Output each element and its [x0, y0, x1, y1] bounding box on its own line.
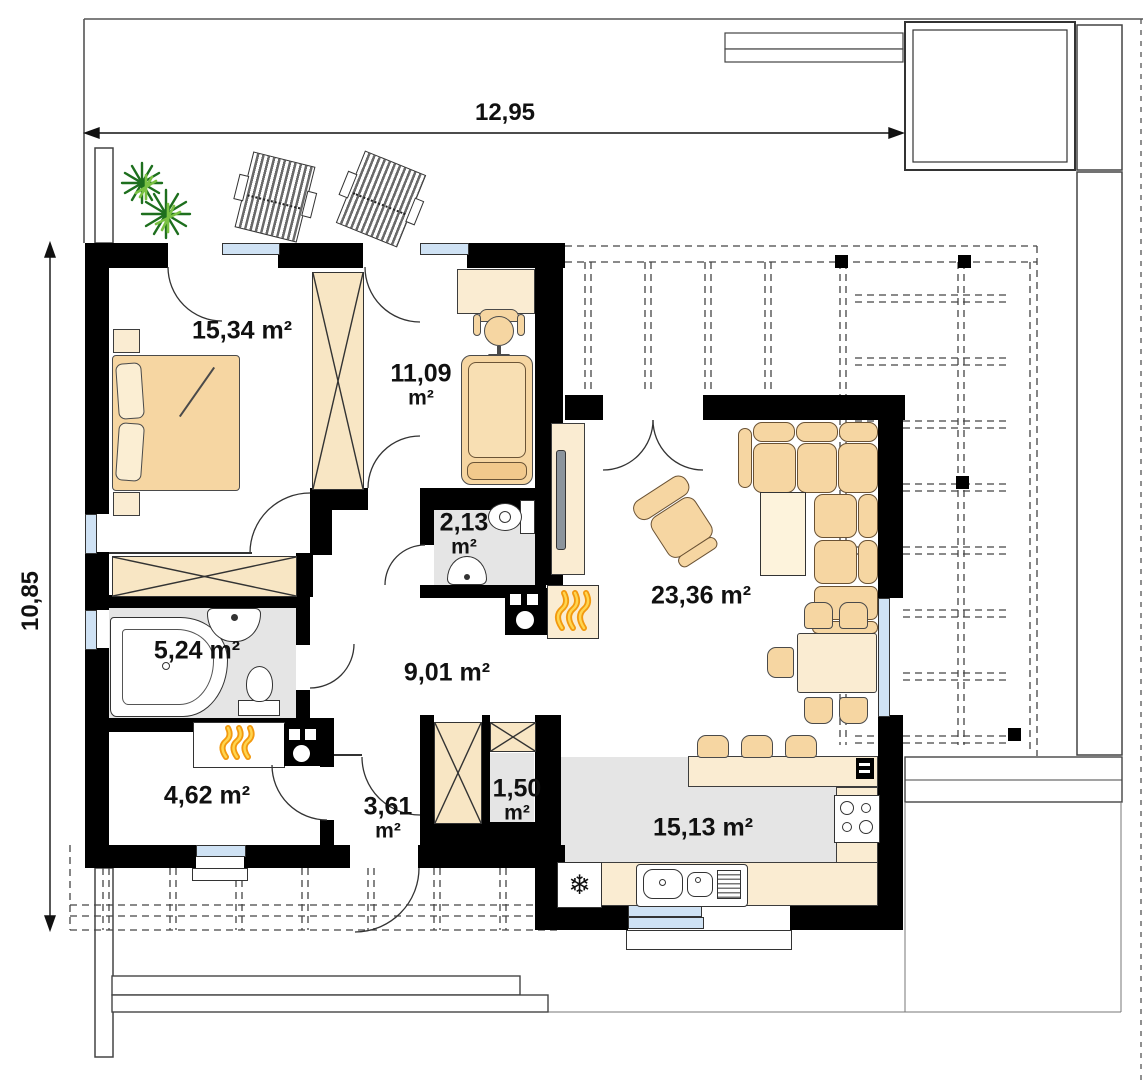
- entrance-door-gap: [350, 845, 418, 868]
- sofa-back-cushion: [796, 422, 838, 442]
- room-label-boiler: 4,62 m²: [164, 782, 250, 811]
- chimney-vent: [510, 594, 521, 605]
- window-pane: [196, 845, 246, 857]
- floor-plan: ❄ 15,34 m² 11,09 m² 2,13 m² 5,24 m² 4,62…: [0, 0, 1147, 1080]
- office-chair-seat: [484, 316, 514, 346]
- nightstand: [113, 329, 140, 353]
- room-label-pantry: 1,50 m²: [493, 777, 542, 824]
- daybed-pillow: [467, 462, 527, 480]
- dining-chair: [839, 602, 868, 629]
- panel-slot: [859, 763, 870, 766]
- pillow: [115, 422, 145, 482]
- office-terrace-door-gap: [363, 243, 420, 268]
- wardrobe: [434, 722, 482, 824]
- sofa-back-cushion: [839, 422, 878, 442]
- lounge-fold-line: [247, 194, 300, 209]
- room-label-kitchen: 15,13 m²: [653, 814, 753, 843]
- lounge-armrest: [301, 191, 317, 219]
- furnace-flame-icon: [194, 723, 280, 763]
- lounge-fold-line: [353, 192, 406, 215]
- wardrobe: [312, 272, 364, 490]
- living-double-door-gap: [603, 395, 703, 420]
- thin-wall-line: [109, 552, 252, 554]
- chimney-flue: [293, 745, 310, 762]
- armchair: [626, 462, 742, 578]
- sofa-seat: [797, 443, 837, 493]
- boiler-window: [196, 845, 244, 868]
- wall: [296, 553, 313, 597]
- window-pane: [222, 243, 280, 255]
- boiler-window-sill: [192, 868, 248, 881]
- bedroom-window: [222, 243, 278, 268]
- room-label-pantry-value: 1,50: [493, 777, 542, 803]
- sink-drain: [659, 879, 666, 886]
- dining-window: [878, 598, 903, 715]
- wall: [320, 732, 334, 767]
- kitchen-window-sill: [626, 930, 792, 950]
- fridge-icon: ❄: [557, 862, 602, 908]
- wall: [482, 715, 490, 825]
- chimney-block: [284, 724, 322, 766]
- dining-chair: [804, 602, 833, 629]
- room-label-pantry-unit: m²: [504, 802, 530, 823]
- sink-faucet: [695, 877, 701, 883]
- toilet-tank: [238, 700, 280, 716]
- window-pane: [420, 243, 469, 255]
- burner: [840, 801, 854, 815]
- room-label-entry: 3,61 m²: [364, 795, 413, 842]
- bar-counter: [688, 756, 878, 787]
- lounge-chair-icon: [336, 150, 426, 247]
- wardrobe: [490, 722, 536, 752]
- kitchen-window: [628, 905, 790, 930]
- wardrobe: [112, 556, 297, 597]
- room-label-bedroom: 15,34 m²: [192, 317, 292, 346]
- dining-chair: [839, 697, 868, 724]
- lounge-armrest: [233, 174, 249, 202]
- wall: [85, 243, 109, 868]
- window-pane: [878, 598, 890, 717]
- plant-icon: [112, 158, 196, 242]
- office-chair-armrest: [517, 314, 525, 336]
- sofa-seat: [814, 540, 857, 584]
- chimney-block: [505, 588, 547, 635]
- sink-drainer: [717, 870, 741, 899]
- room-label-office-unit: m²: [408, 387, 434, 408]
- sofa-back-cushion: [858, 540, 878, 584]
- bedroom-terrace-door-gap: [168, 243, 222, 268]
- basin-drain: [464, 574, 470, 580]
- room-label-hall: 9,01 m²: [404, 659, 490, 688]
- room-label-entry-unit: m²: [375, 820, 401, 841]
- lounge-armrest: [405, 198, 424, 226]
- bar-stool: [785, 735, 817, 758]
- wall: [420, 510, 434, 545]
- fireplace: [547, 585, 599, 639]
- wall: [296, 690, 310, 718]
- stove: [834, 795, 880, 843]
- burner: [859, 820, 873, 834]
- panel-slot: [859, 770, 870, 773]
- electrical-panel-icon: [856, 758, 874, 779]
- toilet-tank: [520, 500, 535, 534]
- room-label-bathroom: 5,24 m²: [154, 637, 240, 666]
- sofa-seat: [814, 494, 857, 538]
- room-label-wc: 2,13 m²: [440, 511, 489, 558]
- window-pane: [85, 610, 97, 650]
- chimney-flue: [516, 611, 534, 629]
- office-chair-armrest: [473, 314, 481, 336]
- tv-icon: [556, 450, 566, 550]
- wall: [320, 820, 334, 845]
- bar-stool: [741, 735, 773, 758]
- left-window-1: [85, 514, 109, 552]
- window-pane: [85, 514, 97, 554]
- wall: [85, 243, 565, 268]
- coffee-table: [760, 492, 806, 576]
- basin-faucet: [231, 614, 238, 621]
- left-window-2: [85, 610, 109, 648]
- room-label-office: 11,09 m²: [390, 362, 451, 409]
- dining-chair: [767, 647, 794, 678]
- furnace: [193, 722, 285, 768]
- dining-table: [797, 633, 877, 693]
- sofa-back-cushion: [858, 494, 878, 538]
- fireplace-flame-icon: [548, 586, 595, 634]
- room-label-living: 23,36 m²: [651, 582, 751, 611]
- daybed-mattress: [468, 362, 526, 458]
- dimension-label-width: 12,95: [475, 99, 535, 127]
- chimney-vent: [289, 729, 300, 740]
- toilet-bowl: [246, 666, 273, 702]
- lounge-chair-icon: [235, 151, 316, 242]
- wall: [420, 715, 434, 825]
- pillow: [115, 362, 145, 420]
- dimension-label-height: 10,85: [17, 571, 45, 631]
- burner: [842, 822, 852, 832]
- wall: [310, 488, 368, 510]
- room-label-wc-value: 2,13: [440, 511, 489, 537]
- room-label-wc-unit: m²: [451, 536, 477, 557]
- wall: [420, 822, 542, 850]
- sofa-armrest: [738, 428, 752, 488]
- chimney-vent: [305, 729, 316, 740]
- kitchen-sink: [636, 864, 748, 907]
- dining-chair: [804, 697, 833, 724]
- wall: [296, 608, 310, 645]
- nightstand: [113, 492, 140, 516]
- chimney-vent: [527, 594, 538, 605]
- desk: [457, 269, 535, 314]
- bar-stool: [697, 735, 729, 758]
- sink-bowl-small: [687, 872, 713, 897]
- burner: [861, 803, 871, 813]
- window-pane: [628, 917, 704, 929]
- sofa-back-cushion: [753, 422, 795, 442]
- room-label-office-value: 11,09: [390, 362, 451, 388]
- room-label-entry-value: 3,61: [364, 795, 413, 821]
- office-window: [420, 243, 467, 268]
- sofa-seat: [753, 443, 796, 493]
- wall: [310, 510, 332, 555]
- thin-wall-line: [334, 754, 362, 756]
- toilet-flush: [499, 511, 511, 523]
- sofa-corner-seat: [838, 443, 878, 493]
